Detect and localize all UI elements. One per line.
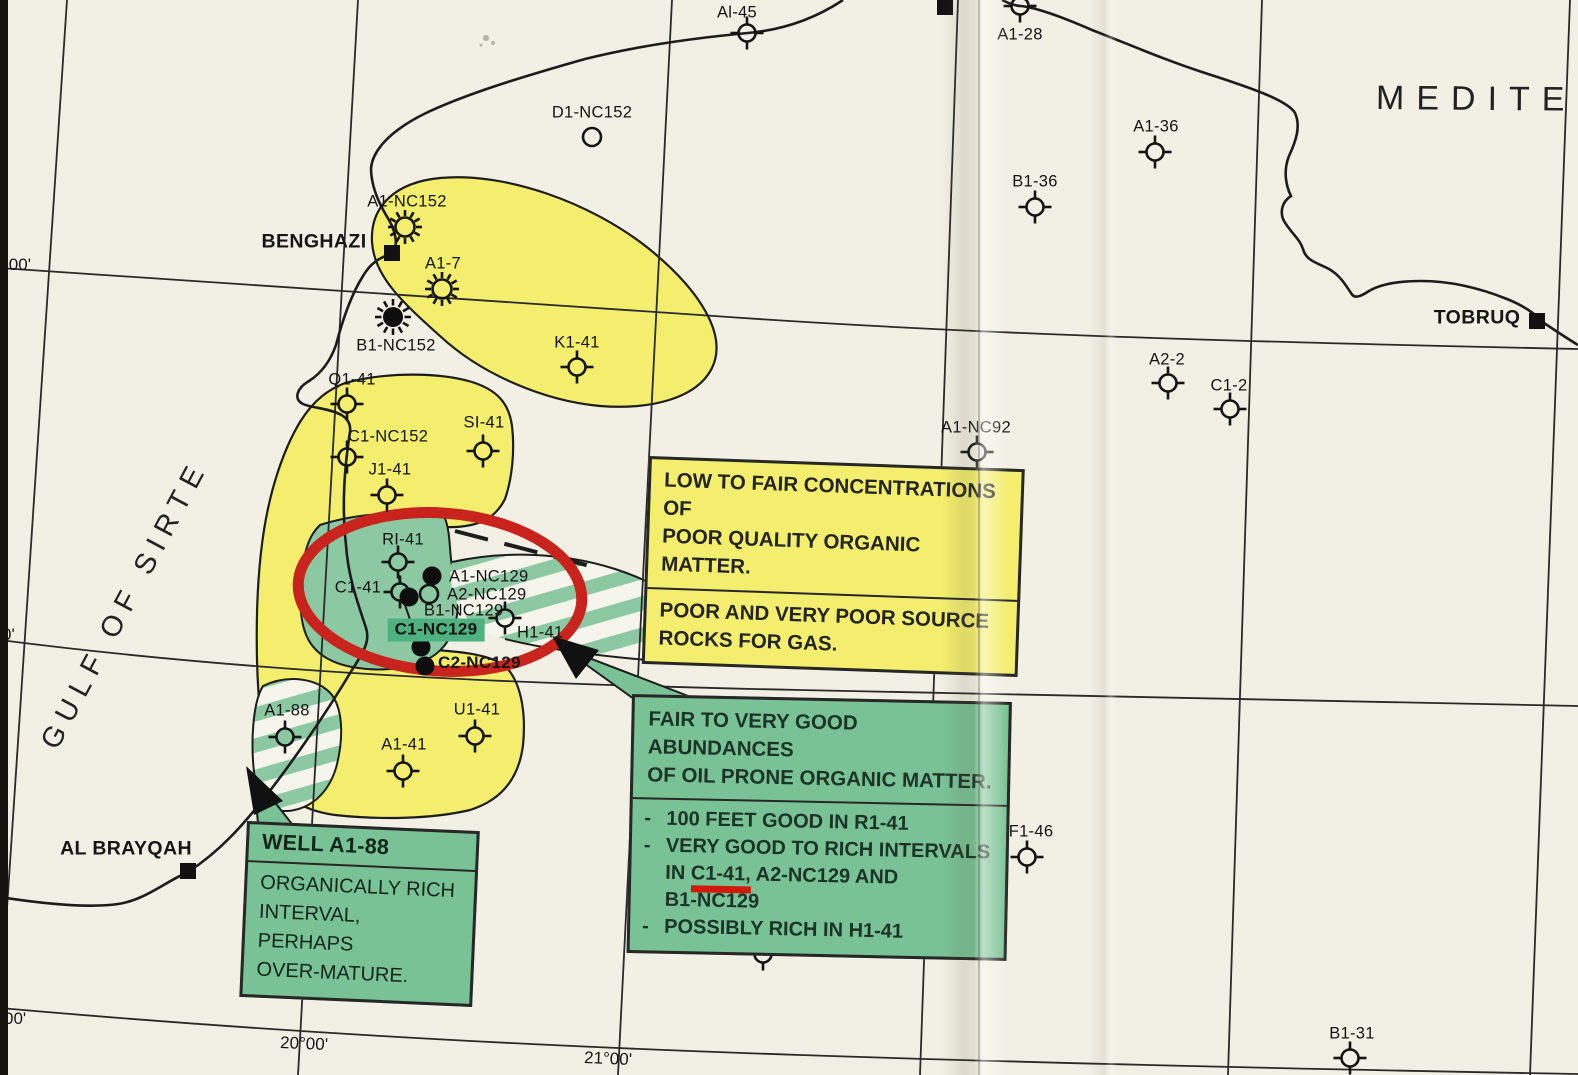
- bullet-dash: -: [642, 913, 665, 940]
- graticule-vline-5: [1228, 0, 1262, 1075]
- well-label-J1-41: J1-41: [369, 461, 412, 480]
- mediterranean-sea-label: MEDITER: [1376, 79, 1578, 120]
- city-square-icon-al-brayqah: [180, 863, 196, 879]
- gas-callout-paragraph-2: POOR AND VERY POOR SOURCE ROCKS FOR GAS.: [645, 587, 1017, 674]
- city-square-icon-benghazi: [384, 245, 400, 261]
- well-label-B1-36: B1-36: [1012, 173, 1058, 192]
- well-label-C1-NC129: C1-NC129: [388, 619, 485, 642]
- well-label-C2-NC129: C2-NC129: [438, 653, 521, 673]
- well-label-A1-NC92: A1-NC92: [941, 419, 1011, 438]
- well-label-H1-41: H1-41: [517, 624, 563, 643]
- well-label-Al-45: Al-45: [717, 4, 757, 23]
- longitude-label-0: 20°00': [280, 1033, 329, 1055]
- well-label-B1-31: B1-31: [1329, 1025, 1375, 1044]
- city-label-al-brayqah: AL BRAYQAH: [60, 838, 192, 861]
- graticule-vline-1: [0, 0, 67, 1075]
- well-label-C1-41: C1-41: [335, 579, 381, 598]
- graticule-vline-6: [1530, 0, 1570, 1075]
- benghazi-yellow-area: [372, 177, 717, 407]
- red-underline-annotation: C1-41,: [690, 862, 751, 893]
- bullet-dash: -: [642, 832, 666, 913]
- well-label-D1-NC152: D1-NC152: [552, 104, 632, 123]
- coastline-east: [1002, 0, 1578, 345]
- well-label-A1-7: A1-7: [425, 255, 461, 274]
- map-canvas: MEDITER GULF OF SIRTE LOW TO FAIR CONCEN…: [0, 0, 1578, 1075]
- well-label-A1-36: A1-36: [1133, 118, 1179, 137]
- well-label-A1-41: A1-41: [381, 736, 427, 755]
- oil-callout-bullet-2: - VERY GOOD TO RICH INTERVALS IN C1-41, …: [642, 832, 996, 920]
- city-label-tobruq: TOBRUQ: [1434, 307, 1521, 330]
- well-label-B1-NC152: B1-NC152: [356, 337, 435, 356]
- gas-callout-paragraph-1: LOW TO FAIR CONCENTRATIONS OF POOR QUALI…: [647, 459, 1021, 600]
- oil-callout-body: - 100 FEET GOOD IN R1-41 - VERY GOOD TO …: [630, 799, 1007, 958]
- bullet-dash: -: [644, 805, 667, 832]
- well-label-A1-NC152: A1-NC152: [367, 193, 446, 212]
- city-label-benghazi: BENGHAZI: [261, 231, 366, 254]
- oil-source-rock-callout: FAIR TO VERY GOOD ABUNDANCES OF OIL PRON…: [627, 694, 1012, 961]
- city-square-icon-tobruq: [1529, 313, 1545, 329]
- gas-source-rock-callout: LOW TO FAIR CONCENTRATIONS OF POOR QUALI…: [642, 456, 1025, 677]
- well-label-SI-41: SI-41: [464, 414, 505, 433]
- well-label-RI-41: RI-41: [382, 531, 424, 550]
- well-label-A1-NC129: A1-NC129: [449, 568, 528, 587]
- city-square-icon: [937, 0, 953, 15]
- well-label-U1-41: U1-41: [454, 701, 500, 720]
- well-label-A2-2: A2-2: [1149, 351, 1185, 370]
- well-label-A1-28: A1-28: [997, 26, 1043, 45]
- well-label-C1-NC152: C1-NC152: [348, 428, 428, 447]
- green-box-bullet2-text: VERY GOOD TO RICH INTERVALS IN C1-41, A2…: [664, 833, 990, 921]
- scan-edge-strip: [0, 0, 8, 1075]
- well-a188-callout: WELL A1-88 ORGANICALLY RICH INTERVAL, PE…: [239, 821, 479, 1007]
- well-label-A1-88: A1-88: [264, 702, 310, 721]
- well-label-Q1-41: Q1-41: [328, 371, 375, 390]
- longitude-label-1: 21°00': [584, 1048, 633, 1070]
- oil-callout-header: FAIR TO VERY GOOD ABUNDANCES OF OIL PRON…: [633, 697, 1009, 807]
- well-label-K1-41: K1-41: [554, 334, 600, 353]
- well-a188-callout-body: ORGANICALLY RICH INTERVAL, PERHAPS OVER-…: [242, 862, 475, 1004]
- well-label-C1-2: C1-2: [1211, 377, 1248, 396]
- paper-speckle: [480, 35, 496, 47]
- well-label-F1-46: F1-46: [1009, 823, 1054, 842]
